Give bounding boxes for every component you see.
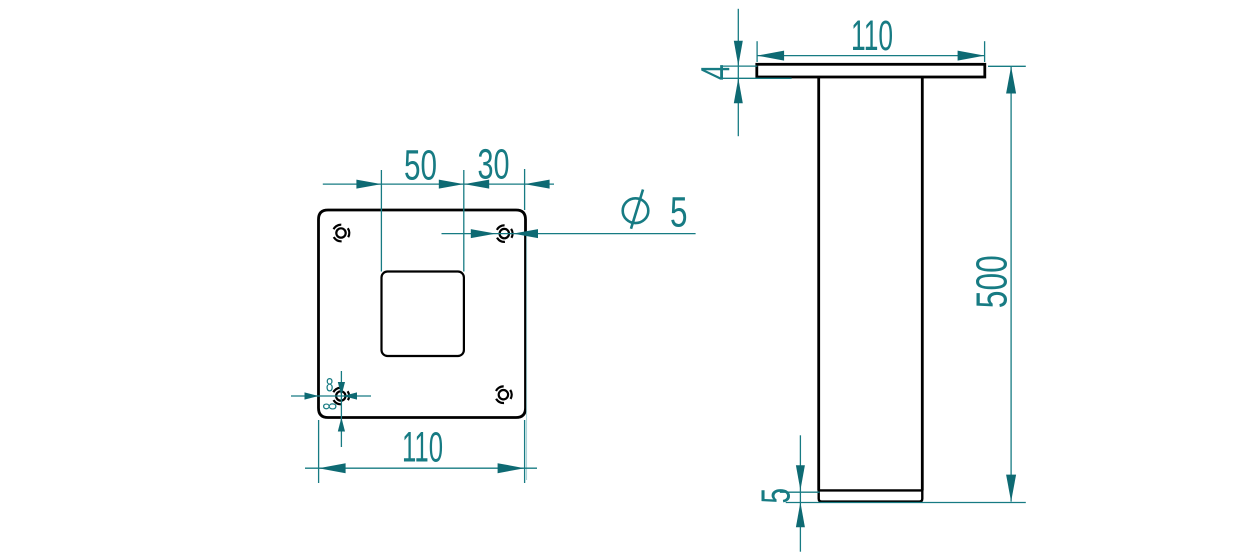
svg-text:4: 4 [693, 64, 739, 80]
svg-text:8: 8 [320, 403, 342, 411]
svg-text:30: 30 [478, 141, 510, 189]
svg-text:50: 50 [404, 142, 437, 190]
svg-text:500: 500 [969, 255, 1017, 308]
svg-text:5: 5 [670, 189, 688, 237]
svg-text:110: 110 [402, 424, 443, 472]
svg-text:8: 8 [326, 375, 334, 397]
svg-text:110: 110 [851, 12, 893, 60]
svg-text:5: 5 [753, 488, 799, 504]
